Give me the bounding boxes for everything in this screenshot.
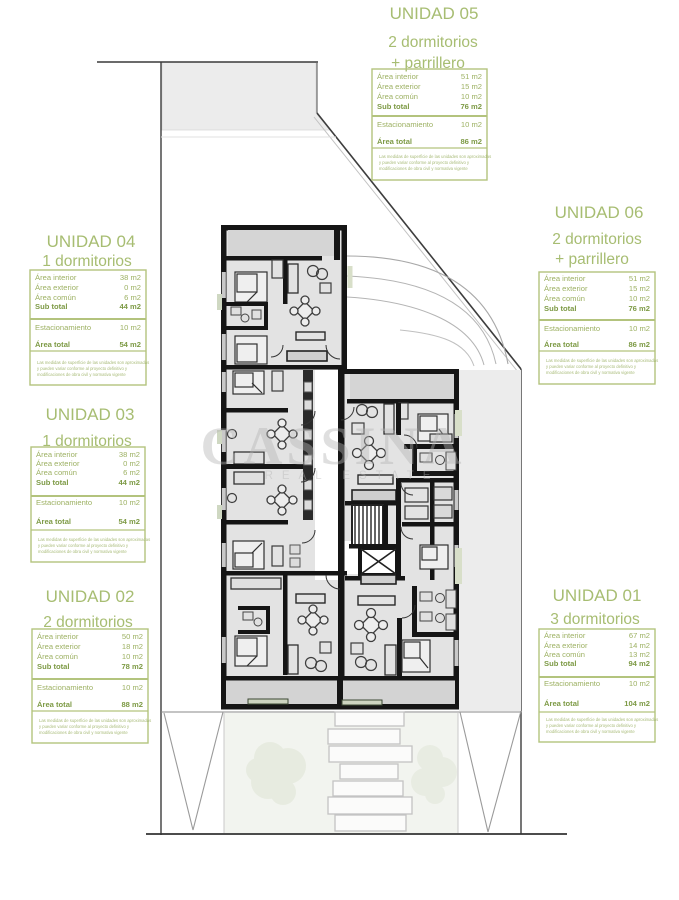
svg-text:1 dormitorios: 1 dormitorios [42,253,132,270]
svg-text:10 m2: 10 m2 [120,323,141,332]
svg-text:6 m2: 6 m2 [123,468,140,477]
svg-text:Área total: Área total [35,340,70,349]
svg-text:Área interior: Área interior [377,72,419,81]
svg-text:86 m2: 86 m2 [460,137,482,146]
svg-text:86 m2: 86 m2 [628,340,650,349]
svg-text:Área exterior: Área exterior [377,82,421,91]
svg-text:50 m2: 50 m2 [122,632,143,641]
svg-text:Área común: Área común [36,468,77,477]
svg-text:Área exterior: Área exterior [36,459,80,468]
svg-text:Área total: Área total [36,517,71,526]
svg-text:modificaciones de obra civil y: modificaciones de obra civil y normativa… [39,730,128,735]
svg-text:UNIDAD 06: UNIDAD 06 [555,203,644,222]
svg-text:Sub total: Sub total [36,478,68,487]
svg-text:y pueden variar conforme al pr: y pueden variar conforme al proyecto def… [37,366,128,371]
svg-text:Sub total: Sub total [37,662,69,671]
svg-text:0 m2: 0 m2 [123,459,140,468]
svg-text:13 m2: 13 m2 [629,650,650,659]
svg-text:10 m2: 10 m2 [629,294,650,303]
svg-text:94 m2: 94 m2 [628,659,650,668]
svg-text:0 m2: 0 m2 [124,283,141,292]
svg-text:Área interior: Área interior [35,273,77,282]
svg-text:2 dormitorios: 2 dormitorios [552,231,642,248]
svg-text:y pueden variar conforme al pr: y pueden variar conforme al proyecto def… [38,543,129,548]
svg-text:88 m2: 88 m2 [121,700,143,709]
svg-text:Área común: Área común [377,92,418,101]
svg-text:UNIDAD 02: UNIDAD 02 [46,587,135,606]
svg-text:10 m2: 10 m2 [629,324,650,333]
svg-text:15 m2: 15 m2 [629,284,650,293]
svg-text:14 m2: 14 m2 [629,641,650,650]
svg-text:Área exterior: Área exterior [35,283,79,292]
svg-text:10 m2: 10 m2 [119,498,140,507]
svg-text:Área interior: Área interior [544,274,586,283]
svg-text:15 m2: 15 m2 [461,82,482,91]
svg-text:modificaciones de obra civil y: modificaciones de obra civil y normativa… [379,166,468,171]
svg-text:54 m2: 54 m2 [118,517,140,526]
svg-text:y pueden variar conforme al pr: y pueden variar conforme al proyecto def… [546,364,637,369]
svg-text:6 m2: 6 m2 [124,293,141,302]
svg-text:Estacionamiento: Estacionamiento [35,323,91,332]
svg-text:44 m2: 44 m2 [118,478,140,487]
svg-text:y pueden variar conforme al pr: y pueden variar conforme al proyecto def… [39,724,130,729]
svg-text:Las medidas de superficie de l: Las medidas de superficie de las unidade… [39,718,151,723]
svg-text:Sub total: Sub total [35,302,67,311]
svg-text:51 m2: 51 m2 [461,72,482,81]
svg-text:+ parrillero: + parrillero [555,251,629,268]
svg-text:Área exterior: Área exterior [37,642,81,651]
svg-text:10 m2: 10 m2 [461,92,482,101]
svg-text:44 m2: 44 m2 [119,302,141,311]
svg-text:Área exterior: Área exterior [544,284,588,293]
svg-text:Área común: Área común [37,652,78,661]
svg-text:76 m2: 76 m2 [628,304,650,313]
svg-text:67 m2: 67 m2 [629,631,650,640]
svg-text:Área común: Área común [544,294,585,303]
svg-text:Sub total: Sub total [544,304,576,313]
svg-text:Área total: Área total [37,700,72,709]
svg-text:Área común: Área común [35,293,76,302]
svg-text:51 m2: 51 m2 [629,274,650,283]
svg-text:2 dormitorios: 2 dormitorios [388,34,478,51]
svg-text:3 dormitorios: 3 dormitorios [550,611,640,628]
svg-text:Área interior: Área interior [37,632,79,641]
svg-text:54 m2: 54 m2 [119,340,141,349]
svg-text:10 m2: 10 m2 [122,652,143,661]
svg-text:Sub total: Sub total [377,102,409,111]
svg-text:38 m2: 38 m2 [120,273,141,282]
svg-text:CASSINA: CASSINA [200,416,465,476]
svg-text:Las medidas de superficie de l: Las medidas de superficie de las unidade… [37,360,149,365]
svg-text:y pueden variar conforme al pr: y pueden variar conforme al proyecto def… [546,723,637,728]
svg-text:Estacionamiento: Estacionamiento [544,679,600,688]
svg-text:Estacionamiento: Estacionamiento [377,120,433,129]
svg-text:Las medidas de superficie de l: Las medidas de superficie de las unidade… [38,537,150,542]
svg-text:38 m2: 38 m2 [119,450,140,459]
svg-text:UNIDAD 03: UNIDAD 03 [46,405,135,424]
svg-text:UNIDAD 01: UNIDAD 01 [553,586,642,605]
svg-text:modificaciones de obra civil y: modificaciones de obra civil y normativa… [546,370,635,375]
svg-text:Área interior: Área interior [544,631,586,640]
svg-text:Área común: Área común [544,650,585,659]
svg-text:Estacionamiento: Estacionamiento [544,324,600,333]
svg-text:y pueden variar conforme al pr: y pueden variar conforme al proyecto def… [379,160,470,165]
svg-text:UNIDAD 05: UNIDAD 05 [390,4,479,23]
svg-text:10 m2: 10 m2 [629,679,650,688]
svg-text:Área total: Área total [544,699,579,708]
svg-text:modificaciones de obra civil y: modificaciones de obra civil y normativa… [38,549,127,554]
svg-text:Sub total: Sub total [544,659,576,668]
svg-text:10 m2: 10 m2 [122,683,143,692]
svg-text:76 m2: 76 m2 [460,102,482,111]
svg-text:Las medidas de superficie de l: Las medidas de superficie de las unidade… [546,717,658,722]
svg-text:Área exterior: Área exterior [544,641,588,650]
svg-text:104 m2: 104 m2 [624,699,650,708]
svg-text:78 m2: 78 m2 [121,662,143,671]
svg-text:Área total: Área total [377,137,412,146]
svg-text:REAL ESTATE: REAL ESTATE [265,470,440,482]
svg-text:Las medidas de superficie de l: Las medidas de superficie de las unidade… [546,358,658,363]
svg-text:modificaciones de obra civil y: modificaciones de obra civil y normativa… [546,729,635,734]
svg-text:modificaciones de obra civil y: modificaciones de obra civil y normativa… [37,372,126,377]
svg-text:Área total: Área total [544,340,579,349]
svg-text:18 m2: 18 m2 [122,642,143,651]
svg-text:UNIDAD 04: UNIDAD 04 [47,232,136,251]
svg-text:Área interior: Área interior [36,450,78,459]
svg-text:10 m2: 10 m2 [461,120,482,129]
svg-text:Las medidas de superficie de l: Las medidas de superficie de las unidade… [379,154,491,159]
svg-text:Estacionamiento: Estacionamiento [37,683,93,692]
svg-text:Estacionamiento: Estacionamiento [36,498,92,507]
